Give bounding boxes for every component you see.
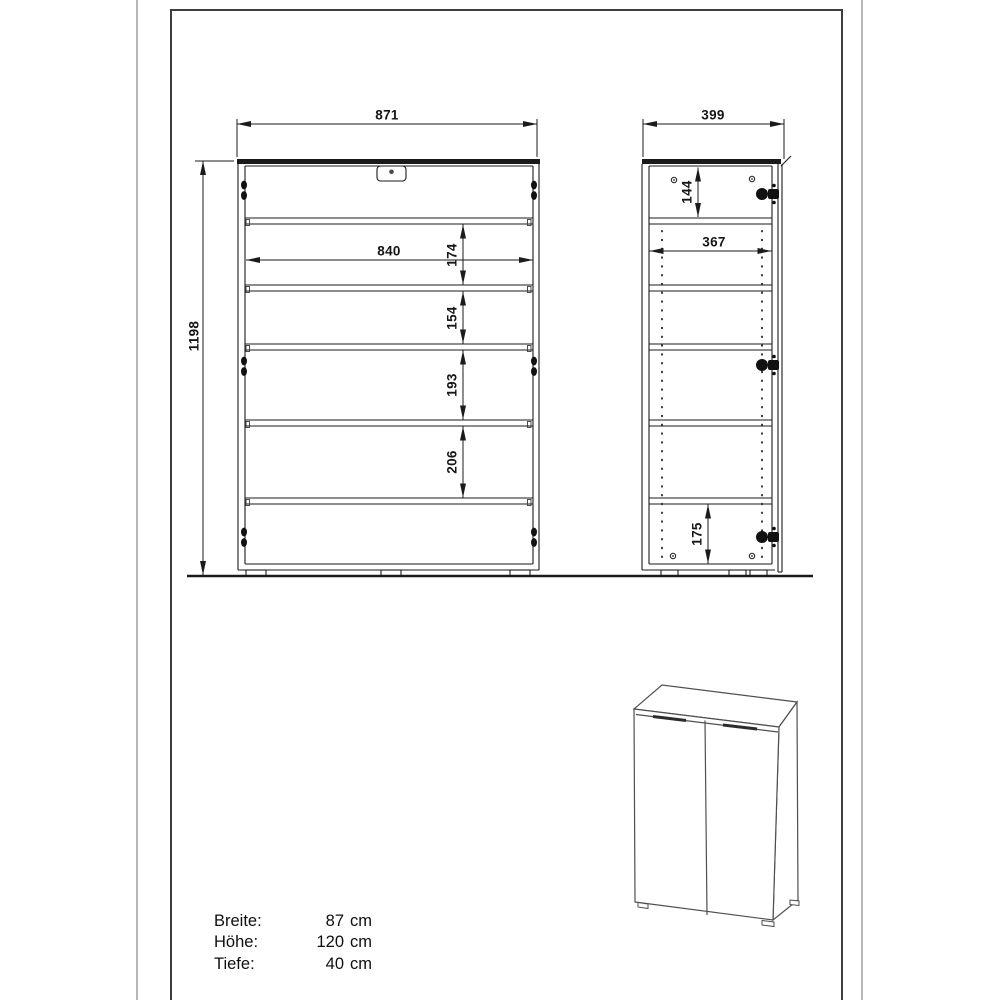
hinge-hardware-marks	[756, 184, 779, 548]
spec-value: 87	[302, 911, 344, 932]
iso-view-linework	[634, 685, 799, 927]
technical-drawing-canvas	[0, 0, 1000, 1000]
side-view-dimension-lines	[643, 119, 784, 564]
front-shelf-lines	[245, 218, 533, 504]
front-height-dim-label: 1198	[187, 321, 202, 352]
front-view-linework	[237, 159, 540, 576]
wall-mount-cutout	[377, 166, 406, 181]
spec-row-hoehe: Höhe:120cm	[214, 932, 372, 953]
front-width-dim-label: 871	[375, 108, 398, 123]
side-shelf-lines	[649, 218, 772, 504]
spec-label: Höhe:	[214, 932, 302, 953]
spec-unit: cm	[350, 911, 372, 932]
front-top-panel	[237, 159, 540, 164]
side-door-slab	[778, 156, 791, 572]
side-top-compartment-dim-label: 144	[680, 180, 695, 203]
spec-value: 40	[302, 954, 344, 975]
spec-row-tiefe: Tiefe:40cm	[214, 954, 372, 975]
front-inner-width-dim-label: 840	[377, 244, 400, 259]
front-compartment-dim-label-3: 193	[445, 373, 460, 396]
spec-label: Breite:	[214, 911, 302, 932]
specs-block: Breite:87cm Höhe:120cm Tiefe:40cm	[214, 911, 372, 975]
spec-unit: cm	[350, 954, 372, 975]
front-compartment-dim-label-4: 206	[445, 450, 460, 473]
side-view-linework	[642, 156, 791, 576]
spec-label: Tiefe:	[214, 954, 302, 975]
door-hinge-marks	[241, 181, 537, 547]
side-bottom-compartment-dim-label: 175	[690, 522, 705, 545]
furniture-dimension-drawing: { "colors": { "line": "#1b1b1b", "frame"…	[0, 0, 1000, 1000]
side-inner-depth-dim-label: 367	[702, 235, 725, 250]
spec-value: 120	[302, 932, 344, 953]
shelf-pin-hole-dots	[662, 231, 762, 557]
front-compartment-dim-label-2: 154	[445, 306, 460, 329]
spec-row-breite: Breite:87cm	[214, 911, 372, 932]
shelf-pin-marks	[246, 220, 531, 506]
side-depth-dim-label: 399	[701, 108, 724, 123]
spec-unit: cm	[350, 932, 372, 953]
side-top-panel	[642, 159, 781, 164]
front-compartment-dim-label-1: 174	[445, 243, 460, 266]
